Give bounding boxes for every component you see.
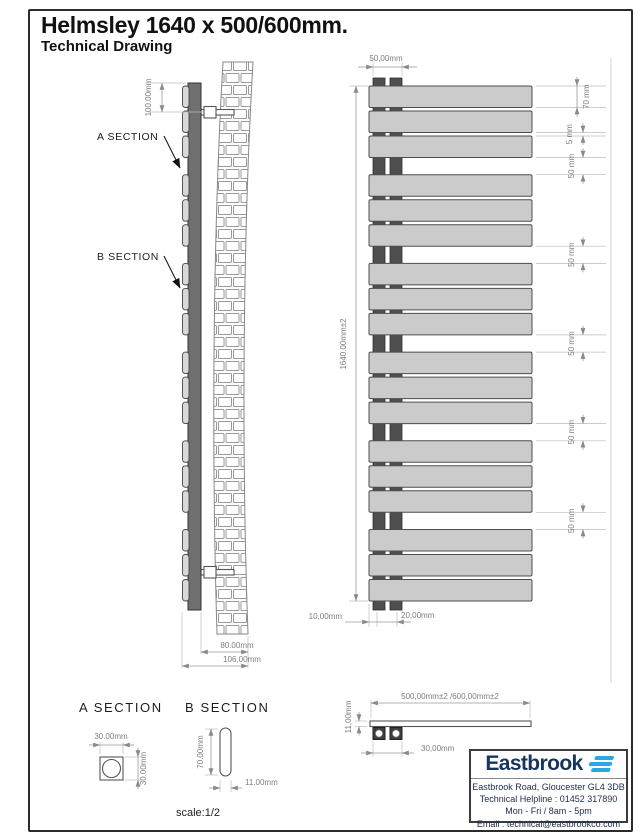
brand-box: Eastbrook Eastbrook Road, Gloucester GL4…	[469, 749, 628, 823]
dim-label-height: 1640.00mm±2	[339, 318, 348, 370]
side-label-a-section: A SECTION	[97, 131, 158, 143]
brand-email: Email : technical@eastbrookco.com	[471, 818, 626, 830]
dim-label-gap: 50 mm	[567, 420, 576, 445]
dim-label-section-a-height: 30.00mm	[139, 751, 148, 785]
dim-label-top-thickness: 11,00mm	[344, 700, 353, 733]
brand-address: Eastbrook Road, Gloucester GL4 3DB	[471, 781, 626, 793]
dim-label-bracket-offset: 100.00mm	[144, 78, 153, 116]
scale-label: scale:1/2	[176, 807, 220, 819]
top-view-panel	[370, 721, 531, 727]
dim-label-section-b-height: 70.00mm	[196, 735, 205, 769]
brand-contact-lines: Eastbrook Road, Gloucester GL4 3DB Techn…	[471, 779, 626, 830]
top-view: 500,00mm±2 /600,00mm±2 11,00mm 30,00mm	[344, 692, 531, 757]
section-a-heading: A SECTION	[79, 700, 163, 715]
dim-label-gap: 50 mm	[567, 508, 576, 533]
brand-logo-text: Eastbrook	[485, 752, 582, 776]
front-view: 50,00mm 1640.00mm±2 70 m	[309, 54, 611, 683]
dim-label-gap: 50 mm	[567, 331, 576, 356]
dim-label-depth-inner: 80.00mm	[220, 641, 254, 650]
dim-label-bottom-left: 10,00mm	[309, 612, 343, 621]
dim-label-section-b-width: 11.00mm	[245, 778, 278, 787]
brand-logo-row: Eastbrook	[471, 751, 626, 779]
top-view-bore-right	[392, 730, 399, 737]
section-b-heading: B SECTION	[185, 700, 269, 715]
dim-label-section-a-width: 30.00mm	[94, 732, 128, 741]
dim-label-top-width: 500,00mm±2 /600,00mm±2	[401, 692, 499, 701]
side-collector-bar	[188, 83, 201, 610]
dim-label-panel: 70 mm	[582, 84, 591, 109]
brand-helpline: Technical Helpline : 01452 317890	[471, 793, 626, 805]
drawing-canvas: 100.00mm A SECTION B SECTION 80.00mm 106…	[0, 0, 643, 840]
dim-label-bottom-right: 20,00mm	[401, 611, 435, 620]
dim-label-gap-small: 5 mm	[565, 124, 574, 144]
dim-label-depth-total: 106,00mm	[223, 655, 261, 664]
dim-label-gap: 50 mm	[567, 242, 576, 267]
dim-label-pipe-centres: 50,00mm	[369, 54, 403, 63]
section-b-detail: B SECTION 70.00mm 11.00mm	[185, 700, 278, 792]
eastbrook-waves-icon	[586, 756, 614, 772]
side-view: 100.00mm A SECTION B SECTION 80.00mm 106…	[97, 62, 261, 668]
dim-label-gap: 50 mm	[567, 154, 576, 179]
section-a-square	[100, 757, 123, 780]
brand-hours: Mon - Fri / 8am - 5pm	[471, 805, 626, 817]
section-b-capsule	[220, 728, 231, 776]
top-view-bore-left	[375, 730, 382, 737]
section-a-detail: A SECTION 30.00mm 30.00mm	[79, 700, 163, 789]
dim-label-top-pipe-offset: 30,00mm	[421, 744, 455, 753]
bracket-collar	[204, 107, 216, 119]
side-label-b-section: B SECTION	[97, 251, 159, 263]
technical-drawing-sheet: Helmsley 1640 x 500/600mm. Technical Dra…	[0, 0, 643, 840]
wall-section	[214, 62, 253, 634]
bracket-collar	[204, 567, 216, 579]
